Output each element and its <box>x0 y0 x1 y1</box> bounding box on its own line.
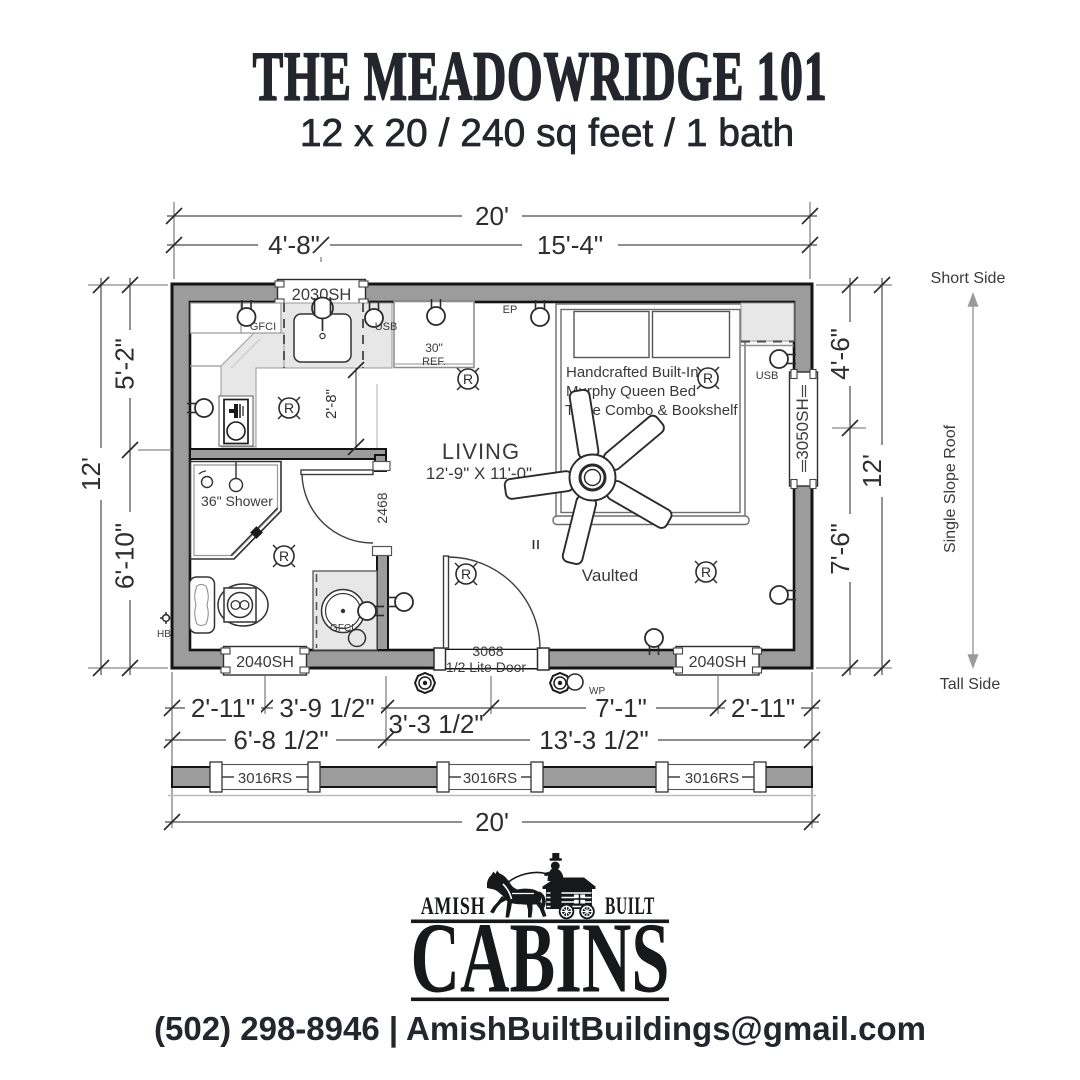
svg-text:Single Slope Roof: Single Slope Roof <box>942 424 959 553</box>
svg-text:USB: USB <box>756 370 779 382</box>
svg-text:2040SH: 2040SH <box>236 654 294 671</box>
svg-text:3050SH: 3050SH <box>793 398 812 459</box>
svg-text:Handcrafted Built-In: Handcrafted Built-In <box>566 364 699 381</box>
svg-text:6'-10": 6'-10" <box>110 523 140 589</box>
svg-text:20': 20' <box>475 807 509 837</box>
svg-text:2'-11": 2'-11" <box>731 693 795 723</box>
svg-text:12': 12' <box>857 454 887 488</box>
svg-text:(502) 298-8946 | AmishBuiltBui: (502) 298-8946 | AmishBuiltBuildings@gma… <box>154 1010 926 1047</box>
svg-text:2'-11": 2'-11" <box>191 693 255 723</box>
svg-text:30": 30" <box>425 341 443 355</box>
svg-text:2468: 2468 <box>374 492 390 523</box>
svg-text:4'-6": 4'-6" <box>825 328 855 380</box>
svg-text:12 x 20 / 240 sq feet / 1 bath: 12 x 20 / 240 sq feet / 1 bath <box>300 112 794 155</box>
svg-text:12': 12' <box>76 457 106 491</box>
svg-text:15'-4": 15'-4" <box>537 230 603 260</box>
svg-text:EP: EP <box>503 304 518 316</box>
svg-text:7'-6": 7'-6" <box>825 523 855 575</box>
svg-text:5'-2": 5'-2" <box>110 338 140 390</box>
svg-text:6'-8 1/2": 6'-8 1/2" <box>233 725 328 755</box>
svg-text:REF.: REF. <box>422 356 446 368</box>
svg-text:36" Shower: 36" Shower <box>201 493 273 509</box>
svg-text:4'-8": 4'-8" <box>268 230 320 260</box>
svg-text:3'-3 1/2": 3'-3 1/2" <box>388 709 483 739</box>
svg-text:2'-8": 2'-8" <box>323 389 340 419</box>
svg-text:HB: HB <box>157 629 171 640</box>
svg-text:1/2 Lite Door: 1/2 Lite Door <box>446 659 526 675</box>
svg-text:3016RS: 3016RS <box>463 770 517 787</box>
svg-text:GFCI: GFCI <box>250 321 276 333</box>
svg-text:Vaulted: Vaulted <box>582 566 638 585</box>
svg-text:USB: USB <box>375 321 398 333</box>
svg-text:Short Side: Short Side <box>931 270 1006 287</box>
svg-text:3'-9 1/2": 3'-9 1/2" <box>279 693 374 723</box>
svg-text:LIVING: LIVING <box>442 439 520 464</box>
svg-text:20': 20' <box>475 201 509 231</box>
svg-text:Tall Side: Tall Side <box>940 676 1001 693</box>
svg-text:3068: 3068 <box>472 643 503 659</box>
svg-text:7'-1": 7'-1" <box>595 693 647 723</box>
svg-text:3016RS: 3016RS <box>685 770 739 787</box>
svg-text:CABINS: CABINS <box>411 903 670 1014</box>
svg-text:THE MEADOWRIDGE 101: THE MEADOWRIDGE 101 <box>253 38 828 115</box>
svg-text:2040SH: 2040SH <box>689 654 747 671</box>
svg-text:13'-3 1/2": 13'-3 1/2" <box>539 725 649 755</box>
svg-text:3016RS: 3016RS <box>238 770 292 787</box>
